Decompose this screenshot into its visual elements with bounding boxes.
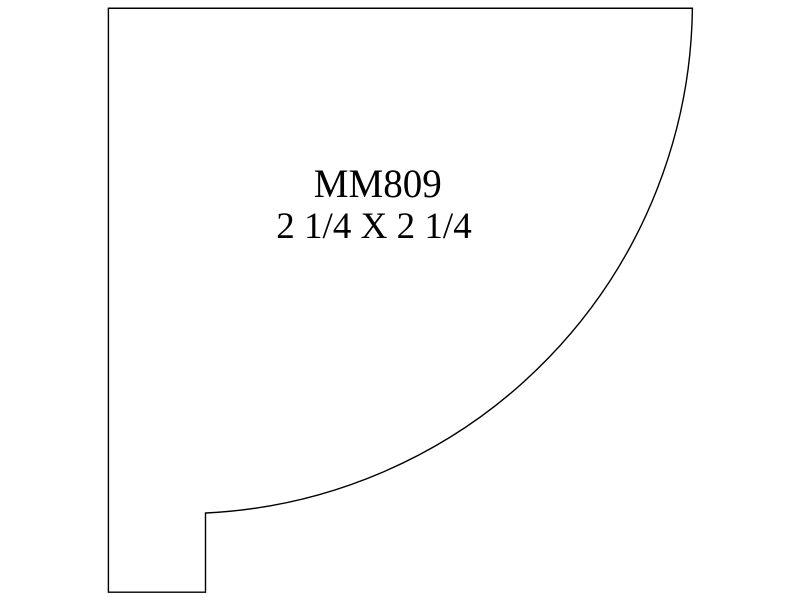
- svg-text:2 1/4 X 2 1/4: 2 1/4 X 2 1/4: [276, 205, 472, 246]
- svg-text:MM809: MM809: [314, 161, 442, 206]
